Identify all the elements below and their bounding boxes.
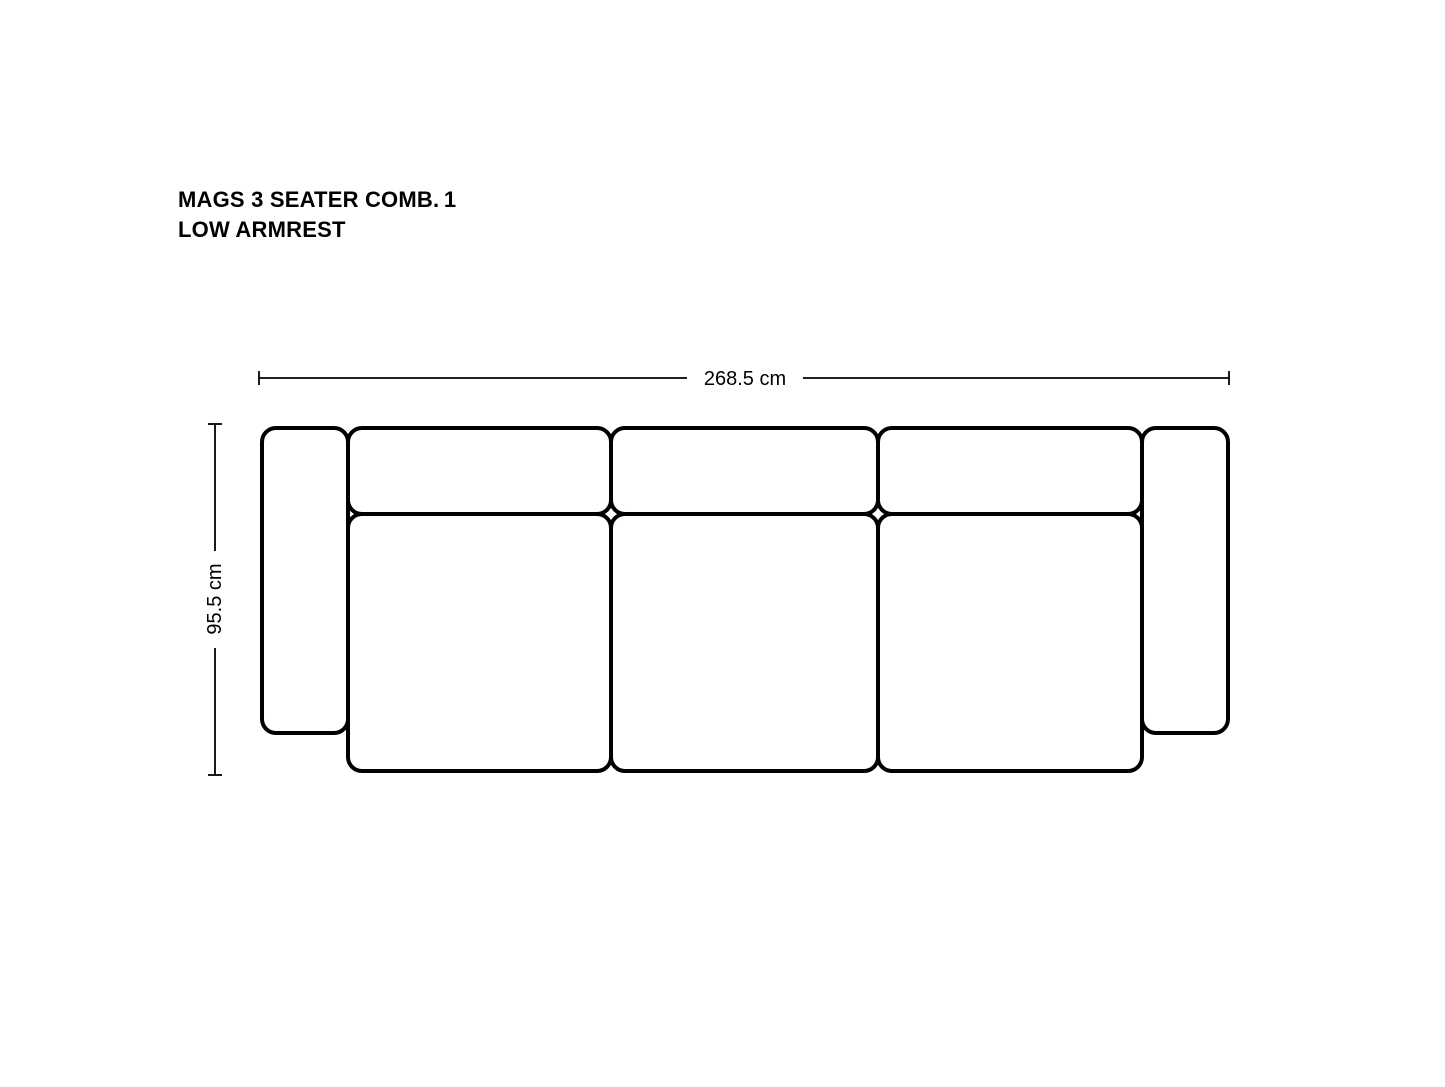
width-dimension: 268.5 cm	[259, 365, 1229, 391]
seat-cushion-1	[348, 514, 611, 771]
left-armrest	[262, 428, 348, 733]
sofa-top-view-diagram: 268.5 cm 95.5 cm	[0, 0, 1445, 1087]
depth-dimension-label: 95.5 cm	[204, 563, 226, 634]
depth-dimension: 95.5 cm	[202, 424, 228, 775]
seat-cushion-2	[611, 514, 878, 771]
seat-cushion-3	[878, 514, 1142, 771]
backrest-module-3	[878, 428, 1142, 514]
right-armrest	[1142, 428, 1228, 733]
product-dimension-page: MAGS 3 SEATER COMB. 1 LOW ARMREST 268.5 …	[0, 0, 1445, 1087]
backrest-module-1	[348, 428, 611, 514]
backrest-module-2	[611, 428, 878, 514]
sofa-outline	[262, 428, 1228, 771]
width-dimension-label: 268.5 cm	[704, 368, 786, 390]
